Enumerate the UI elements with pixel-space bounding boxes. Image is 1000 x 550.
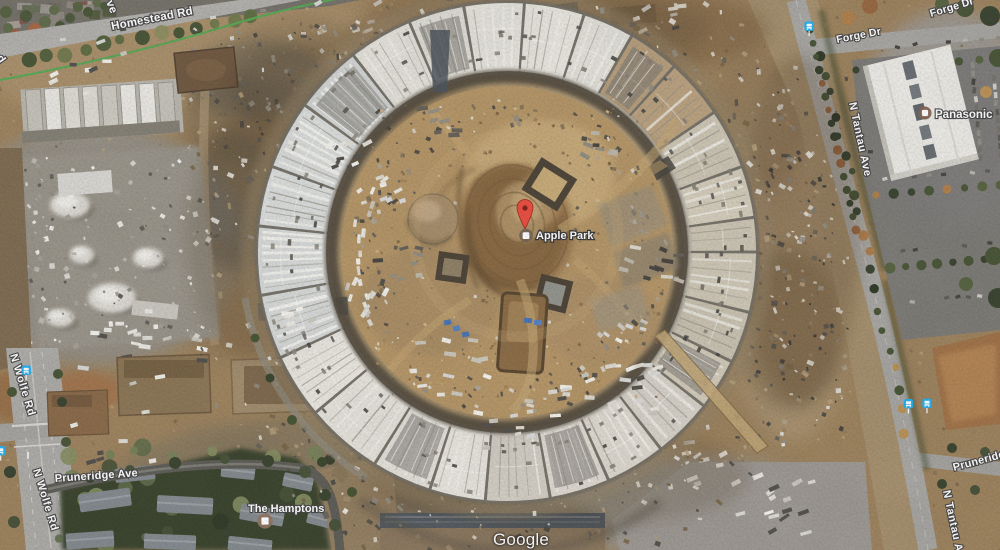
svg-text:Apple Park: Apple Park — [536, 230, 594, 242]
svg-text:The Hamptons: The Hamptons — [248, 503, 324, 515]
svg-text:Google: Google — [493, 530, 549, 549]
svg-text:Panasonic: Panasonic — [935, 109, 993, 121]
